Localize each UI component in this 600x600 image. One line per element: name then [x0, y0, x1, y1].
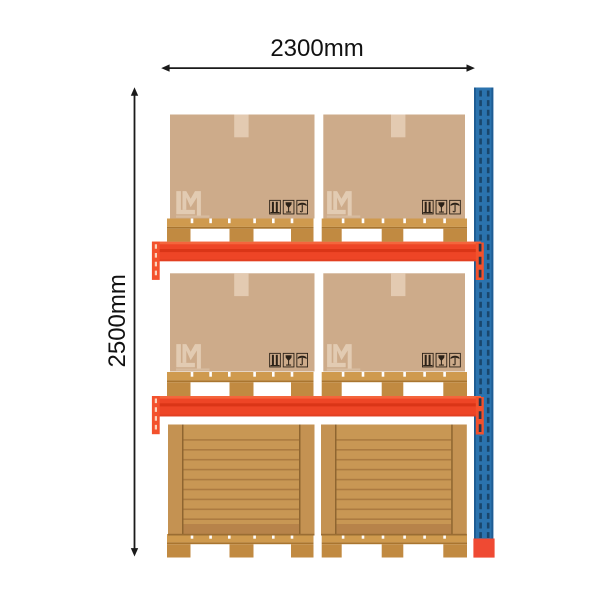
svg-text:2300mm: 2300mm	[270, 35, 363, 62]
svg-text:2500mm: 2500mm	[104, 274, 131, 367]
